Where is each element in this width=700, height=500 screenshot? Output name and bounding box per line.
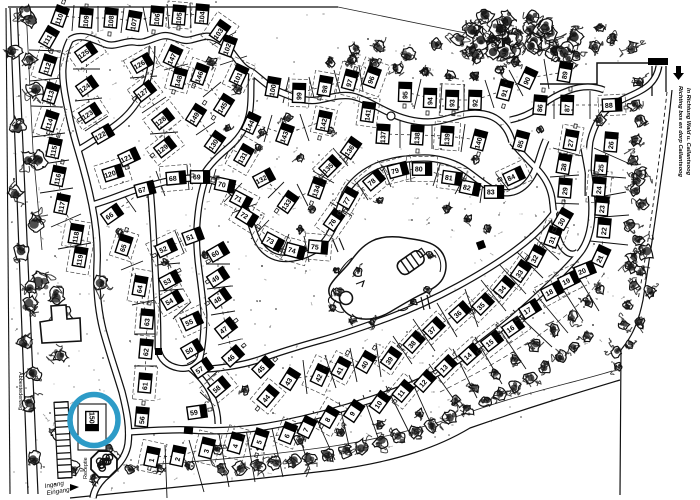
svg-text:137: 137 bbox=[380, 131, 388, 143]
svg-text:62: 62 bbox=[143, 348, 151, 356]
svg-text:89: 89 bbox=[561, 71, 569, 80]
svg-text:Richting bos en dorp Callantso: Richting bos en dorp Callantsoog bbox=[677, 86, 683, 178]
svg-text:22: 22 bbox=[601, 227, 609, 235]
svg-text:24: 24 bbox=[596, 186, 604, 194]
svg-text:104: 104 bbox=[199, 11, 207, 23]
svg-text:106: 106 bbox=[154, 13, 162, 25]
svg-text:150: 150 bbox=[87, 412, 94, 424]
svg-text:86: 86 bbox=[537, 104, 545, 112]
svg-text:88: 88 bbox=[605, 103, 613, 110]
svg-text:59: 59 bbox=[190, 410, 199, 418]
svg-text:93: 93 bbox=[449, 99, 456, 107]
svg-text:29: 29 bbox=[562, 187, 570, 195]
svg-text:108: 108 bbox=[108, 15, 116, 27]
svg-text:75: 75 bbox=[311, 244, 319, 252]
svg-text:98: 98 bbox=[321, 85, 329, 94]
svg-text:Abbestederweg: Abbestederweg bbox=[17, 372, 23, 410]
svg-text:94: 94 bbox=[427, 97, 434, 105]
svg-text:In Richtung Wald u. Callantsoo: In Richtung Wald u. Callantsoog bbox=[685, 88, 691, 176]
svg-text:139: 139 bbox=[444, 133, 452, 145]
svg-text:92: 92 bbox=[472, 99, 479, 107]
svg-text:87: 87 bbox=[564, 104, 571, 112]
svg-text:27: 27 bbox=[567, 139, 575, 148]
svg-text:138: 138 bbox=[414, 132, 422, 144]
svg-text:26: 26 bbox=[608, 141, 616, 149]
svg-text:95: 95 bbox=[402, 91, 409, 99]
svg-text:28: 28 bbox=[560, 163, 568, 172]
svg-text:25: 25 bbox=[598, 164, 606, 172]
svg-text:109: 109 bbox=[83, 15, 91, 27]
svg-text:Receptie: Receptie bbox=[83, 457, 89, 479]
svg-text:61: 61 bbox=[142, 382, 150, 390]
svg-text:80: 80 bbox=[415, 167, 423, 174]
svg-text:23: 23 bbox=[599, 205, 607, 213]
svg-text:105: 105 bbox=[176, 12, 184, 24]
svg-text:99: 99 bbox=[296, 92, 303, 100]
svg-text:64: 64 bbox=[136, 285, 144, 294]
svg-text:68: 68 bbox=[169, 176, 177, 184]
svg-text:63: 63 bbox=[144, 318, 152, 326]
svg-text:56: 56 bbox=[139, 416, 147, 424]
svg-text:81: 81 bbox=[444, 175, 453, 183]
svg-text:83: 83 bbox=[487, 190, 495, 197]
